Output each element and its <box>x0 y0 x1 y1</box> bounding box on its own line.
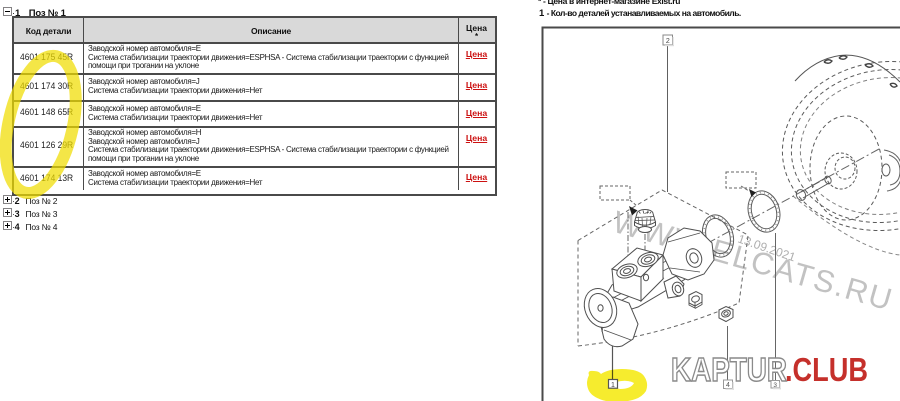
svg-text:4: 4 <box>726 382 730 389</box>
svg-text:WWW.ELCATS.RU: WWW.ELCATS.RU <box>609 204 895 317</box>
svg-text:13.09.2021: 13.09.2021 <box>736 232 798 265</box>
svg-text:KAPTUR: KAPTUR <box>671 351 787 388</box>
svg-text:2: 2 <box>666 38 670 45</box>
svg-text:3: 3 <box>773 382 777 389</box>
svg-text:1: 1 <box>611 382 615 389</box>
svg-text:.CLUB: .CLUB <box>785 351 868 388</box>
